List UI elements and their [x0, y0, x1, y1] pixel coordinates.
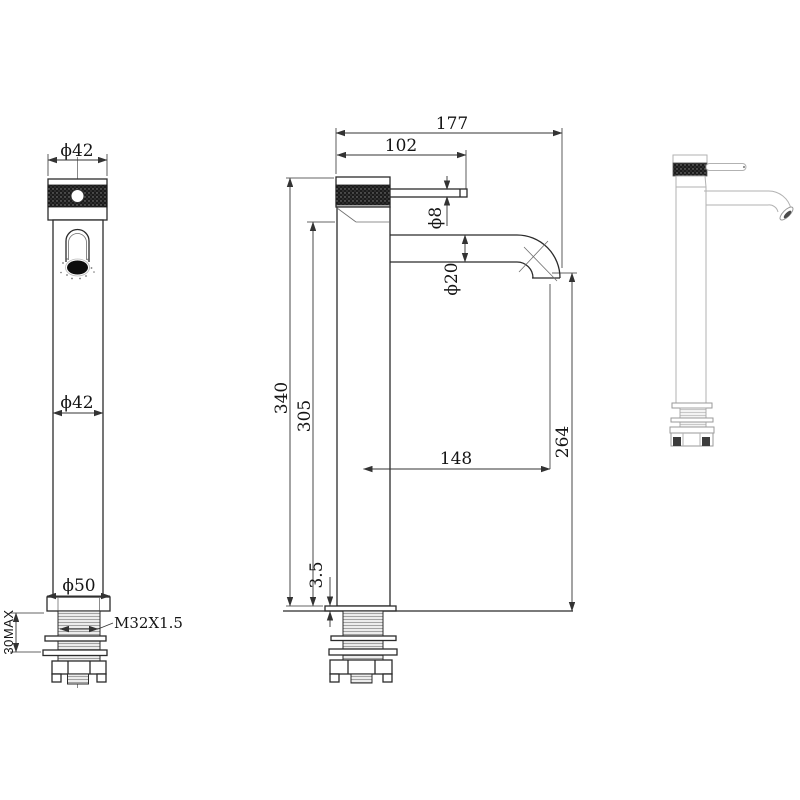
side-body: [337, 207, 390, 606]
front-aerator: [67, 261, 88, 275]
dim-base-plate-thickness: 3.5: [307, 561, 327, 588]
side-mounting-nut: [330, 660, 392, 674]
front-washer-2: [43, 650, 107, 656]
dim-total-height: 340: [272, 382, 292, 414]
ghost-handle-cap: [673, 155, 707, 163]
ghost-neck: [676, 176, 706, 187]
front-mounting-nut: [52, 661, 106, 674]
front-view: ϕ42 ϕ42 ϕ50 30MAX M32X1.5: [1, 141, 183, 688]
side-washer-2: [329, 649, 397, 655]
ghost-nut-foot: [702, 437, 710, 446]
ghost-nut-foot: [673, 437, 681, 446]
dim-spout-diameter: ϕ20: [442, 262, 462, 295]
dim-body-diameter: ϕ42: [60, 393, 93, 413]
side-knurl-band: [336, 185, 390, 205]
front-nut-foot: [97, 674, 106, 682]
front-washer-1: [45, 636, 106, 641]
ghost-lever-rod: [706, 164, 746, 171]
dim-body-height: 305: [295, 400, 315, 432]
dim-total-reach: 177: [436, 114, 468, 134]
ghost-washer-2: [670, 427, 714, 433]
ghost-knurl-band: [673, 163, 707, 176]
perspective-view: [670, 155, 795, 446]
front-nut-foot: [52, 674, 61, 682]
side-spout-outer-curve: [517, 235, 560, 278]
dim-thread-spec: M32X1.5: [114, 614, 183, 632]
side-washer-1: [331, 636, 396, 641]
dim-spout-outlet-height: 264: [553, 426, 573, 458]
side-view: 177 102 ϕ8 ϕ20 340 305 3.5 148 264: [272, 114, 577, 683]
dim-top-diameter: ϕ42: [60, 141, 93, 161]
dim-lever-diameter: ϕ8: [426, 207, 446, 229]
ghost-washer-1: [671, 418, 713, 422]
front-setscrew-hole: [71, 190, 84, 203]
side-base-flange: [325, 606, 396, 611]
side-nut-foot: [330, 674, 339, 682]
ghost-lever-end-dot: [743, 166, 745, 168]
front-base-flange: [47, 597, 110, 611]
ghost-base-flange: [672, 403, 712, 408]
front-tailpipe: [68, 674, 89, 684]
side-spout-inner-curve: [517, 262, 533, 278]
side-lever-rod: [390, 189, 467, 197]
dim-spout-reach: 148: [440, 449, 472, 469]
drawing-page: ϕ42 ϕ42 ϕ50 30MAX M32X1.5: [0, 0, 800, 800]
side-tailpipe: [351, 674, 372, 683]
ghost-body: [676, 187, 706, 403]
technical-drawing-canvas: ϕ42 ϕ42 ϕ50 30MAX M32X1.5: [0, 0, 800, 800]
dim-lever-reach: 102: [385, 136, 417, 156]
ghost-spout-outer-curve: [768, 191, 791, 209]
dim-base-diameter: ϕ50: [62, 576, 95, 596]
side-nut-foot: [383, 674, 392, 682]
ghost-spout-inner-curve: [768, 205, 778, 212]
dim-mounting-thickness: 30MAX: [1, 609, 16, 654]
